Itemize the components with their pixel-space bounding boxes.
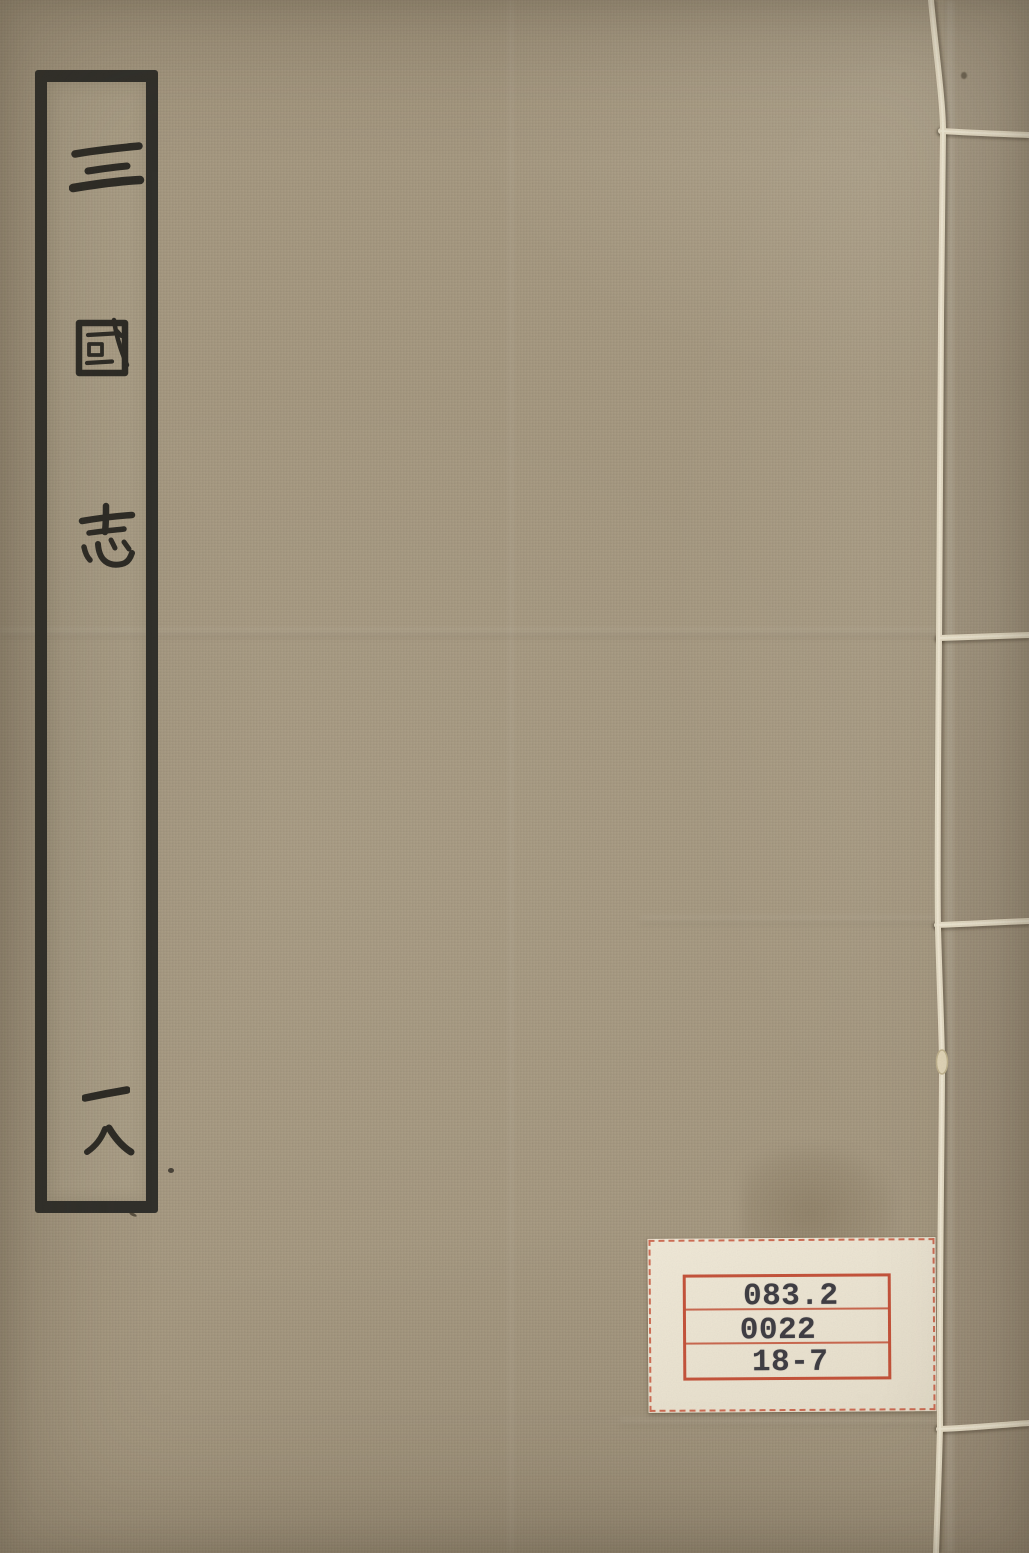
stroke — [88, 334, 114, 336]
stroke — [87, 1129, 105, 1152]
stroke — [98, 544, 132, 565]
title-text: 三國志 — [47, 82, 48, 83]
stroke — [117, 331, 122, 336]
call-number-line-1: 083.2 — [690, 1281, 892, 1312]
crease-line — [508, 0, 514, 1553]
stroke — [79, 323, 125, 373]
ink-speck — [961, 72, 967, 79]
stitch-hole — [935, 1425, 944, 1434]
call-number-line-2: 0022 — [677, 1315, 879, 1346]
title-label: 三國志 一八 — [35, 70, 158, 1213]
stroke — [75, 146, 139, 154]
call-number-line-3: 18-7 — [689, 1347, 891, 1378]
title-char-san-glyph — [69, 137, 145, 193]
crease-line — [620, 1418, 936, 1427]
stroke — [111, 540, 115, 548]
stroke — [124, 542, 129, 549]
ink-speck — [168, 1168, 174, 1173]
stroke — [109, 1128, 131, 1152]
stroke — [84, 547, 90, 560]
stroke — [73, 180, 140, 188]
call-number-label: 083.2 0022 18-7 — [647, 1237, 936, 1413]
title-char-zhi-glyph — [78, 502, 136, 572]
cover-right-edge-shade — [944, 0, 1029, 1553]
call-label-inner-box: 083.2 0022 18-7 — [683, 1273, 892, 1380]
stitch-hole — [935, 635, 944, 644]
stroke — [105, 506, 106, 532]
stitch-hole — [933, 922, 942, 931]
volume-text: 一八 — [47, 82, 48, 83]
volume-char-yi-glyph — [82, 1084, 130, 1102]
crease-line — [640, 916, 936, 925]
stroke — [89, 529, 124, 533]
stroke — [89, 344, 102, 355]
volume-char-ba-glyph — [79, 1122, 135, 1158]
stroke — [82, 515, 132, 521]
stroke — [88, 166, 127, 171]
stroke — [85, 1090, 127, 1098]
stroke — [87, 362, 112, 364]
title-char-guo-glyph — [74, 317, 134, 379]
book-cover: 三國志 一八 — [0, 0, 1029, 1553]
stroke — [114, 320, 127, 365]
